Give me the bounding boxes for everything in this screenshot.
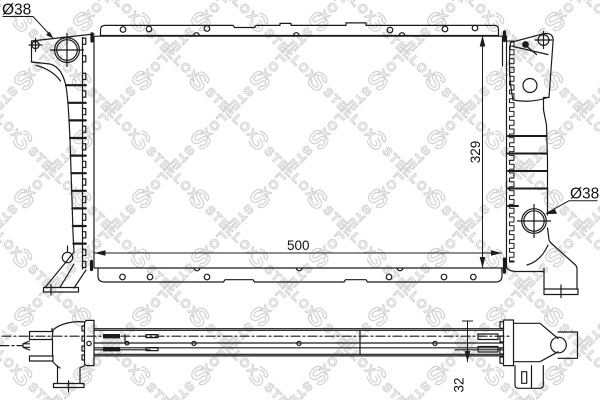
svg-text:329: 329 [468,141,483,164]
svg-text:Ø38: Ø38 [2,2,31,19]
svg-text:500: 500 [287,238,310,253]
svg-text:Ø38: Ø38 [570,186,599,203]
svg-text:32: 32 [452,377,467,392]
